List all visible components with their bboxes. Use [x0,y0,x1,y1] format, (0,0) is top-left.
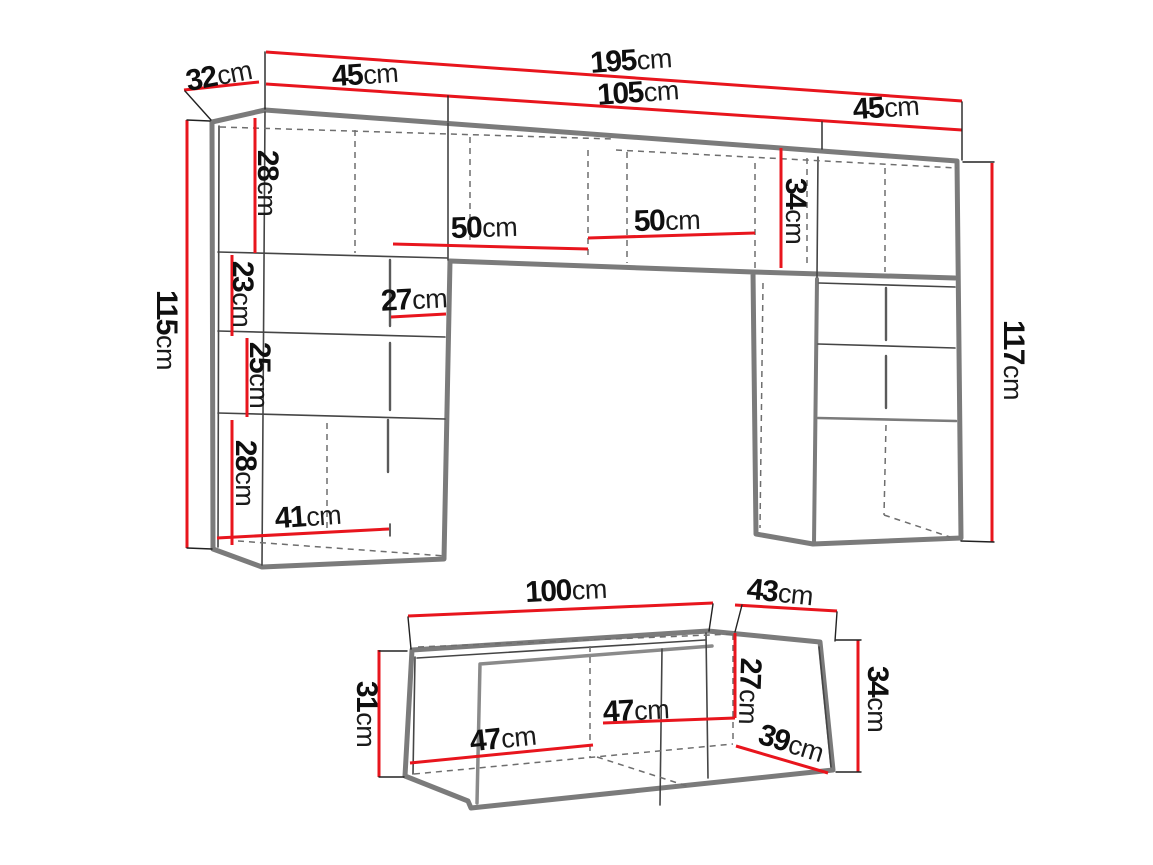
dim-wall-shelf-left-width: 50cm [450,212,517,244]
dim-value: 105 [596,76,644,112]
dim-value: 27 [733,657,767,689]
dim-unit: cm [777,578,815,611]
dim-value: 50 [450,211,482,245]
dim-value: 50 [633,204,665,238]
dim-unit: cm [998,365,1028,400]
wall-unit-outline [212,110,961,567]
furniture-line-drawing [0,0,1153,865]
dim-value: 41 [274,500,307,535]
dim-unit: cm [883,91,920,123]
dim-unit: cm [227,292,257,327]
dim-wall-top-row-height: 34cm [780,178,810,244]
furniture-dimension-diagram: 32cm 195cm 45cm 105cm 45cm 115cm 117cm 3… [0,0,1153,865]
dim-wall-cell3-height: 25cm [244,342,274,408]
dim-wall-cell1-height: 28cm [252,150,282,216]
dim-unit: cm [351,712,381,747]
dim-unit: cm [244,373,274,408]
dim-value: 45 [852,91,885,126]
dim-wall-left-section-width: 45cm [331,58,399,93]
wall-unit-panel-lines [218,112,955,565]
dim-unit: cm [230,471,260,506]
dim-value: 47 [602,694,634,729]
dim-value: 31 [350,681,383,711]
dim-wall-bottom-width: 41cm [274,500,342,535]
dim-value: 27 [380,283,412,318]
wall-unit-hidden-edges [220,127,957,556]
dim-unit: cm [643,75,680,107]
dim-value: 28 [251,150,284,180]
dim-wall-left-height: 115cm [151,290,181,370]
dim-unit: cm [252,181,282,216]
dim-value: 23 [226,261,259,291]
wall-unit-door-gaps [388,260,886,472]
dim-unit: cm [733,689,764,725]
dim-value: 25 [243,342,276,372]
dim-value: 47 [468,722,502,758]
dim-unit: cm [500,721,538,754]
dim-wall-cell4-height: 28cm [230,440,260,506]
dim-unit: cm [633,694,670,726]
dim-value: 34 [779,178,812,208]
dim-unit: cm [665,205,701,236]
dim-tv-inner-height: 27cm [733,657,765,724]
dim-tv-width: 100cm [524,574,607,608]
dim-value: 195 [589,44,637,80]
dim-unit: cm [151,335,181,370]
dim-value: 43 [745,573,779,609]
dim-unit: cm [362,58,399,90]
dim-value: 115 [150,290,183,334]
dim-value: 34 [861,666,894,696]
dim-value: 28 [229,440,262,470]
dim-value: 100 [524,574,571,609]
dim-tv-right-height: 34cm [862,666,892,732]
dim-tv-inner-right-width: 47cm [602,694,670,727]
dim-wall-right-height: 117cm [998,320,1028,400]
dim-value: 45 [331,58,364,93]
dim-value: 117 [997,320,1030,364]
dim-unit: cm [780,209,810,244]
dim-wall-cell2-height: 23cm [227,261,257,327]
dim-tv-left-height: 31cm [351,681,381,747]
dim-unit: cm [411,283,448,315]
dim-unit: cm [636,43,673,75]
dim-wall-total-width: 195cm [589,43,672,79]
dim-unit: cm [862,697,892,732]
dim-unit: cm [482,212,518,243]
dim-wall-middle-section-width: 105cm [596,75,679,111]
dim-wall-shelf-right-width: 50cm [633,205,700,237]
dim-wall-right-section-width: 45cm [852,91,920,126]
dim-unit: cm [305,500,342,532]
dim-tv-depth: 43cm [745,575,814,612]
dim-unit: cm [571,574,608,606]
dim-wall-cell-width: 27cm [380,283,448,316]
